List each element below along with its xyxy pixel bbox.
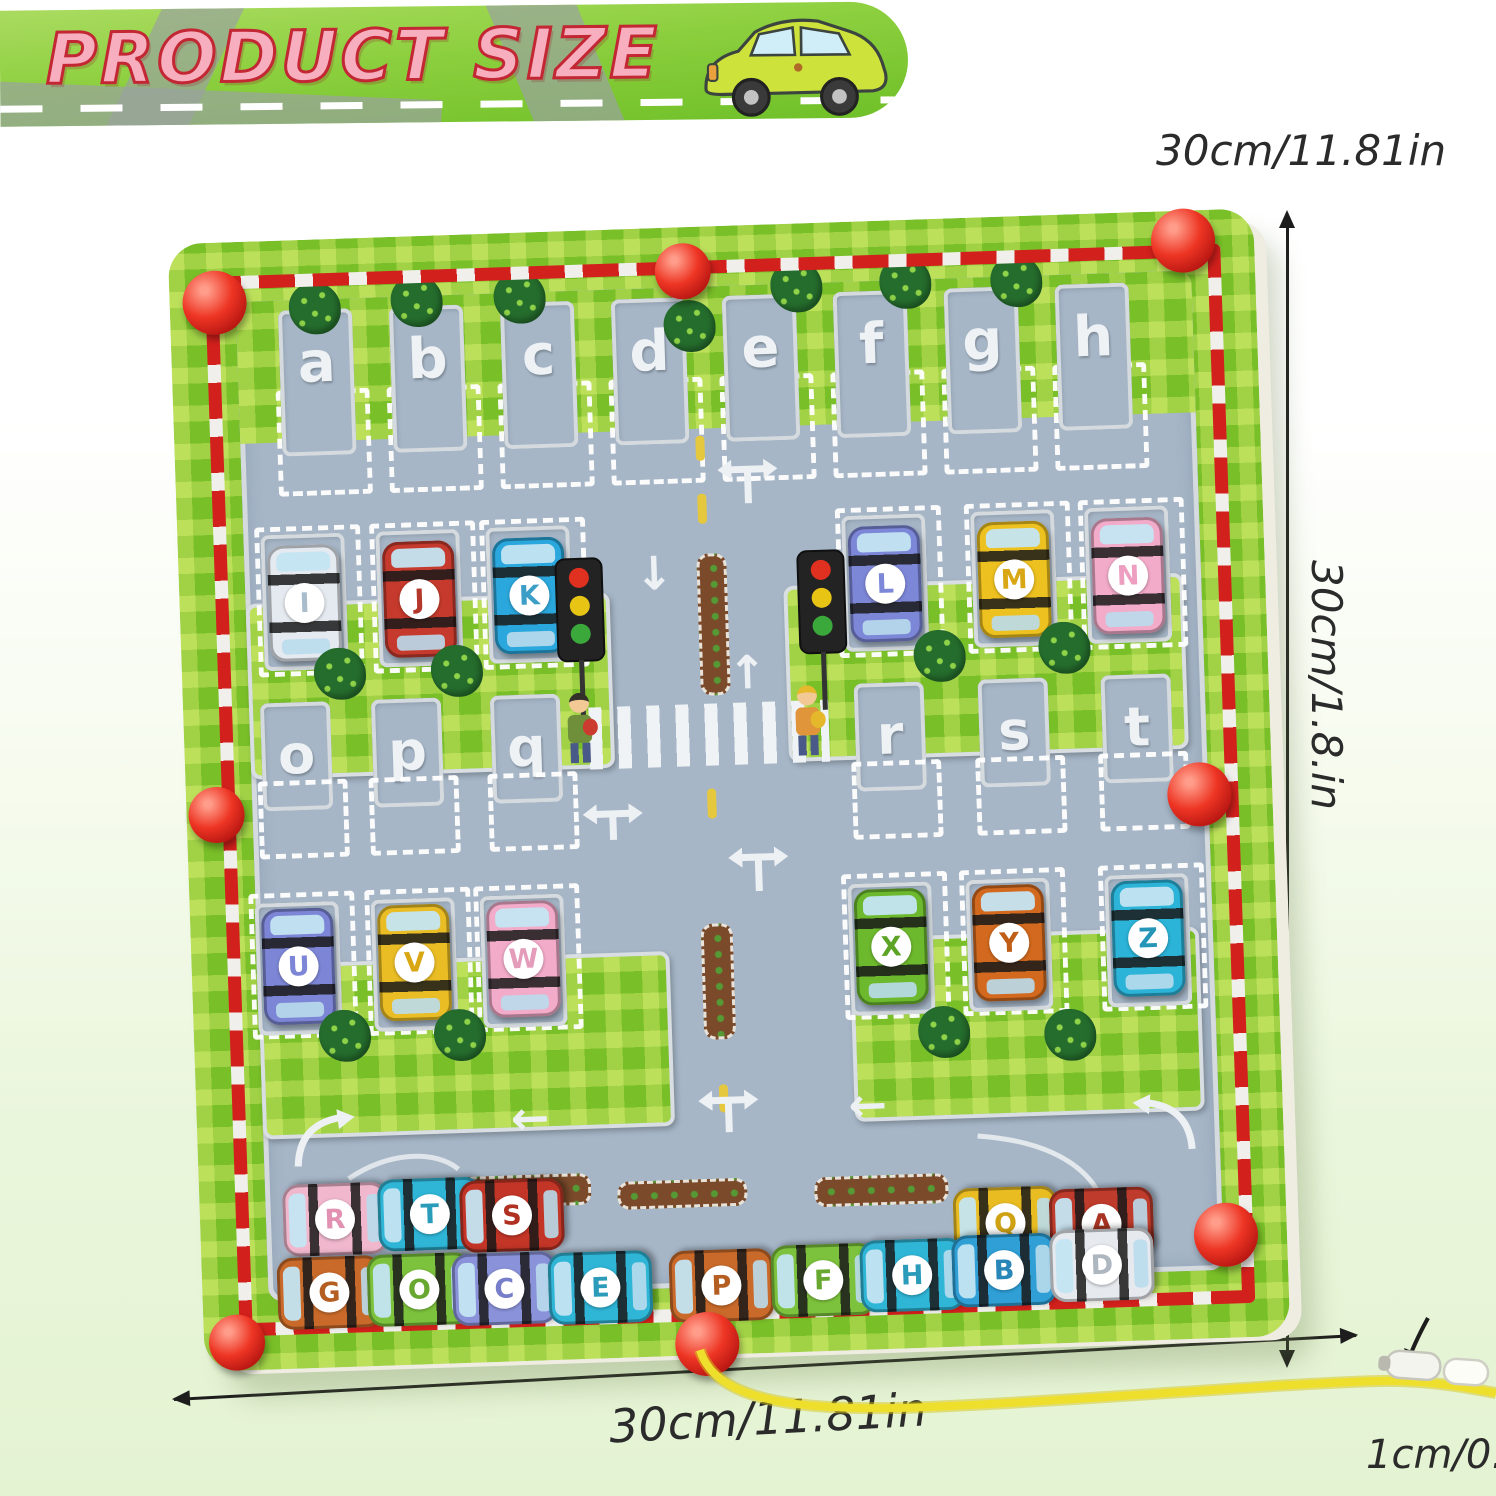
parking-spot: [975, 755, 1068, 836]
slot-letter: s: [978, 703, 1050, 759]
parking-spot: [487, 771, 580, 852]
car-piece-D[interactable]: D: [1049, 1227, 1155, 1302]
parking-spot: [851, 759, 944, 840]
thickness-arrow-icon: [1398, 1312, 1448, 1372]
slot-letter: f: [833, 316, 909, 374]
car-letter: R: [314, 1199, 355, 1240]
red-knob[interactable]: [208, 1314, 266, 1372]
car-letter: S: [491, 1195, 532, 1236]
center-line-dash: [719, 1084, 729, 1112]
car-piece-U[interactable]: U: [261, 907, 337, 1025]
car-letter: Z: [1127, 918, 1168, 959]
car-letter: X: [871, 926, 912, 967]
slot-letter: b: [390, 331, 466, 389]
car-letter: J: [399, 579, 440, 620]
car-letter: N: [1107, 555, 1148, 596]
car-piece-J[interactable]: J: [382, 540, 458, 658]
letter-slot-g[interactable]: g: [943, 286, 1022, 434]
traffic-light-icon: [796, 549, 847, 655]
pedestrian-kid-icon: [789, 685, 828, 768]
car-letter: D: [1081, 1244, 1122, 1285]
car-piece-X[interactable]: X: [853, 888, 929, 1006]
car-piece-E[interactable]: E: [547, 1250, 653, 1325]
parking-spot: [368, 775, 461, 856]
car-piece-Z[interactable]: Z: [1110, 879, 1186, 997]
car-letter: G: [309, 1272, 350, 1313]
red-knob[interactable]: [188, 786, 246, 844]
median-strip: [617, 1178, 748, 1210]
letter-slot-f[interactable]: f: [833, 290, 912, 438]
car-letter: Y: [989, 922, 1030, 963]
slot-letter: r: [854, 707, 926, 763]
car-piece-W[interactable]: W: [486, 900, 562, 1018]
car-piece-B[interactable]: B: [951, 1232, 1057, 1307]
road-arrow-up-icon: ↑: [727, 649, 767, 696]
letter-slot-e[interactable]: e: [722, 294, 801, 442]
car-letter: P: [701, 1265, 742, 1306]
dimension-vertical-arrow: [1286, 226, 1289, 1352]
center-line-dash: [695, 436, 705, 461]
car-letter: F: [803, 1259, 844, 1300]
slot-letter: h: [1055, 308, 1131, 366]
car-letter: O: [399, 1269, 440, 1310]
car-letter: T: [409, 1193, 450, 1234]
car-piece-H[interactable]: H: [859, 1237, 965, 1312]
car-letter: L: [865, 563, 906, 604]
car-letter: K: [509, 575, 550, 616]
car-piece-C[interactable]: C: [451, 1251, 557, 1326]
dimension-thickness-label: 1cm/0.39in: [1366, 1432, 1496, 1478]
letter-slot-h[interactable]: h: [1054, 282, 1133, 430]
car-letter: E: [580, 1267, 621, 1308]
car-piece-L[interactable]: L: [847, 525, 923, 643]
car-piece-V[interactable]: V: [377, 903, 453, 1021]
dimension-side-label: 30cm/1.8.in: [1302, 560, 1351, 810]
car-letter: V: [394, 942, 435, 983]
slot-letter: a: [279, 334, 355, 392]
car-piece-Y[interactable]: Y: [971, 884, 1047, 1002]
slot-letter: e: [722, 320, 798, 378]
red-knob[interactable]: [1150, 208, 1216, 274]
car-letter: C: [484, 1268, 525, 1309]
median-strip: [696, 553, 731, 696]
car-piece-R[interactable]: R: [282, 1182, 388, 1257]
slot-letter: p: [372, 723, 444, 779]
car-letter: B: [983, 1249, 1024, 1290]
car-piece-S[interactable]: S: [459, 1178, 565, 1253]
road-arrow-down-icon: ↓: [634, 550, 674, 597]
center-line-dash: [707, 788, 717, 818]
road-arrow-left-icon: ←: [848, 1081, 888, 1128]
road-arrow-left-icon: ←: [510, 1094, 550, 1141]
car-letter: U: [278, 946, 319, 987]
red-knob[interactable]: [1166, 761, 1232, 827]
median-strip: [700, 923, 736, 1040]
dimension-bottom-label: 30cm/11.81in: [175, 1359, 1360, 1477]
car-piece-P[interactable]: P: [668, 1248, 774, 1323]
car-piece-I[interactable]: I: [267, 544, 343, 662]
center-line-dash: [697, 494, 707, 524]
car-letter: W: [503, 938, 544, 979]
product-size-page: PRODUCT SIZE 30cm/11.81in 30cm/1.8.in 30…: [0, 0, 1496, 1496]
car-letter: H: [892, 1255, 933, 1296]
slot-letter: g: [944, 312, 1020, 370]
traffic-light-icon: [554, 557, 605, 663]
slot-letter: q: [491, 720, 563, 776]
car-piece-M[interactable]: M: [976, 520, 1052, 638]
car-letter: M: [994, 559, 1035, 600]
banner-car-icon: [689, 7, 900, 125]
slot-letter: c: [501, 327, 577, 385]
slot-letter: t: [1101, 699, 1173, 755]
maze-board: a b c d e f g h ↓ ↑: [168, 208, 1291, 1371]
slot-letter: o: [261, 727, 333, 783]
letter-slot-c[interactable]: c: [500, 301, 579, 449]
car-letter: I: [284, 582, 325, 623]
parking-spot: [257, 779, 350, 860]
magnetic-pen-icon: [1377, 1349, 1489, 1386]
letter-slot-b[interactable]: b: [389, 305, 468, 453]
median-strip: [814, 1173, 949, 1207]
car-piece-N[interactable]: N: [1090, 516, 1166, 634]
page-title: PRODUCT SIZE: [46, 18, 661, 94]
dimension-top-label: 30cm/11.81in: [1156, 126, 1446, 175]
pedestrian-kid-icon: [561, 692, 600, 775]
title-banner: PRODUCT SIZE: [0, 1, 909, 127]
